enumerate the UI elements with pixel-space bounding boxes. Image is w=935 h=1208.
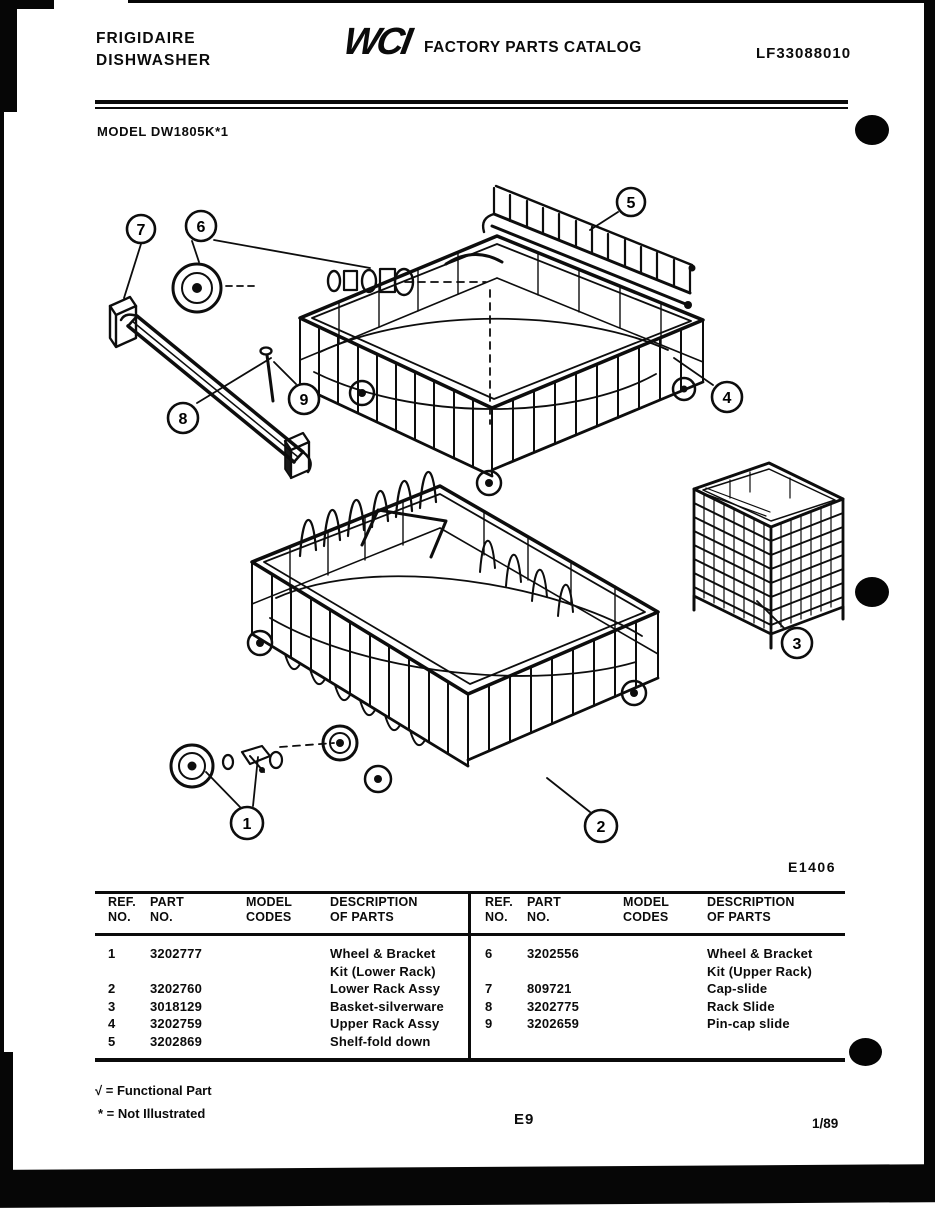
part-no-cell: 3202659: [527, 1015, 623, 1033]
description-cell: Upper Rack Assy: [330, 1015, 466, 1033]
part-no-cell: 3202777: [150, 945, 246, 980]
date-code: 1/89: [812, 1116, 838, 1131]
ref-no-cell: 1: [108, 945, 150, 980]
ref-no-cell: 4: [108, 1015, 150, 1033]
table-row: 33018129Basket-silverware: [100, 998, 466, 1016]
wci-logo: WCI: [340, 22, 412, 62]
table-row: 7809721Cap-slide: [477, 980, 843, 998]
scan-artifact-left-strip: [0, 0, 4, 1200]
model-codes-header: MODEL CODES: [246, 895, 330, 924]
ref-no-cell: 2: [108, 980, 150, 998]
table-row: 93202659Pin-cap slide: [477, 1015, 843, 1033]
document-number: LF33088010: [756, 45, 851, 62]
description-header: DESCRIPTION OF PARTS: [330, 895, 474, 924]
callout-2-label: 2: [597, 819, 606, 836]
catalog-title: FACTORY PARTS CATALOG: [424, 39, 642, 57]
callout-1-label: 1: [243, 816, 252, 833]
callout-leader-lines: [124, 212, 785, 812]
cap-slide-drawing: [110, 297, 136, 347]
brand-block: FRIGIDAIRE DISHWASHER: [96, 28, 211, 72]
upper-wheel-bracket-drawing: [173, 264, 413, 312]
part-no-header: PART NO.: [527, 895, 623, 924]
ref-no-header: REF. NO.: [108, 895, 150, 924]
model-codes-cell: [246, 945, 330, 980]
model-codes-cell: [246, 1033, 330, 1051]
model-codes-cell: [623, 945, 707, 980]
model-codes-cell: [246, 980, 330, 998]
callout-6: 6: [186, 211, 216, 241]
ref-no-cell: 8: [485, 998, 527, 1016]
ref-no-cell: 5: [108, 1033, 150, 1051]
part-no-cell: 3202760: [150, 980, 246, 998]
table-header-right: REF. NO. PART NO. MODEL CODES DESCRIPTIO…: [477, 895, 851, 924]
model-number-line: MODEL DW1805K*1: [97, 124, 229, 139]
lower-wheel-bracket-drawing: [171, 745, 282, 787]
callout-1: 1: [231, 807, 263, 839]
table-row: 53202869Shelf-fold down: [100, 1033, 466, 1051]
punch-hole-bottom: [849, 1038, 882, 1066]
rack-slide-drawing: [121, 315, 311, 472]
callout-3: 3: [782, 628, 812, 658]
header-rule-thin: [95, 107, 848, 109]
description-header: DESCRIPTION OF PARTS: [707, 895, 851, 924]
description-cell: Rack Slide: [707, 998, 843, 1016]
page-code: E9: [514, 1111, 534, 1128]
parts-table-right: 63202556Wheel & BracketKit (Upper Rack)7…: [477, 945, 843, 1033]
lower-rack-drawing: [248, 472, 658, 792]
ref-no-cell: 7: [485, 980, 527, 998]
callout-5: 5: [617, 188, 645, 216]
callout-2: 2: [585, 810, 617, 842]
part-no-cell: 3202759: [150, 1015, 246, 1033]
parts-table-left: 13202777Wheel & BracketKit (Lower Rack)2…: [100, 945, 466, 1050]
callout-4-label: 4: [723, 390, 732, 407]
callout-7-label: 7: [137, 222, 146, 239]
header-rule-thick: [95, 100, 848, 104]
callout-6-label: 6: [197, 219, 206, 236]
model-codes-header: MODEL CODES: [623, 895, 707, 924]
description-cell: Cap-slide: [707, 980, 843, 998]
part-no-cell: 3202869: [150, 1033, 246, 1051]
legend-not-illustrated: * = Not Illustrated: [98, 1106, 205, 1121]
brand-line-1: FRIGIDAIRE: [96, 28, 211, 50]
part-no-cell: 3202775: [527, 998, 623, 1016]
table-header-left: REF. NO. PART NO. MODEL CODES DESCRIPTIO…: [100, 895, 474, 924]
table-row: 83202775Rack Slide: [477, 998, 843, 1016]
description-cell: Wheel & BracketKit (Upper Rack): [707, 945, 843, 980]
punch-hole-top: [855, 115, 889, 145]
punch-hole-middle: [855, 577, 889, 607]
part-no-cell: 809721: [527, 980, 623, 998]
callout-4: 4: [712, 382, 742, 412]
part-no-header: PART NO.: [150, 895, 246, 924]
part-no-cell: 3202556: [527, 945, 623, 980]
callout-3-label: 3: [793, 636, 802, 653]
model-codes-cell: [246, 998, 330, 1016]
scan-artifact-right-bar: [924, 0, 935, 1200]
ref-no-header: REF. NO.: [485, 895, 527, 924]
ref-no-cell: 6: [485, 945, 527, 980]
brand-line-2: DISHWASHER: [96, 50, 211, 72]
callout-8-label: 8: [179, 411, 188, 428]
ref-no-cell: 9: [485, 1015, 527, 1033]
callout-9: 9: [289, 384, 319, 414]
table-row: 43202759Upper Rack Assy: [100, 1015, 466, 1033]
table-row: 63202556Wheel & BracketKit (Upper Rack): [477, 945, 843, 980]
model-codes-cell: [623, 1015, 707, 1033]
description-cell: Shelf-fold down: [330, 1033, 466, 1051]
model-codes-cell: [623, 998, 707, 1016]
ref-no-cell: 3: [108, 998, 150, 1016]
table-row: 23202760Lower Rack Assy: [100, 980, 466, 998]
legend-functional-part: √ = Functional Part: [95, 1083, 212, 1098]
model-codes-cell: [623, 980, 707, 998]
callout-7: 7: [127, 215, 155, 243]
model-codes-cell: [246, 1015, 330, 1033]
description-cell: Pin-cap slide: [707, 1015, 843, 1033]
scan-artifact-bottom-band: [0, 1164, 935, 1208]
callout-8: 8: [168, 403, 198, 433]
callout-5-label: 5: [627, 195, 636, 212]
description-cell: Wheel & BracketKit (Lower Rack): [330, 945, 466, 980]
part-no-cell: 3018129: [150, 998, 246, 1016]
silverware-basket-drawing: [694, 463, 843, 648]
description-cell: Basket-silverware: [330, 998, 466, 1016]
figure-code: E1406: [788, 859, 836, 875]
callout-9-label: 9: [300, 392, 309, 409]
scan-artifact-top-line: [128, 0, 935, 3]
description-cell: Lower Rack Assy: [330, 980, 466, 998]
upper-rack-drawing: [292, 236, 703, 495]
pin-cap-slide-drawing: [261, 348, 310, 479]
fold-down-shelf-drawing: [483, 186, 695, 309]
table-row: 13202777Wheel & BracketKit (Lower Rack): [100, 945, 466, 980]
catalog-page: { "page": { "paper_color": "#ffffff", "i…: [0, 0, 935, 1200]
